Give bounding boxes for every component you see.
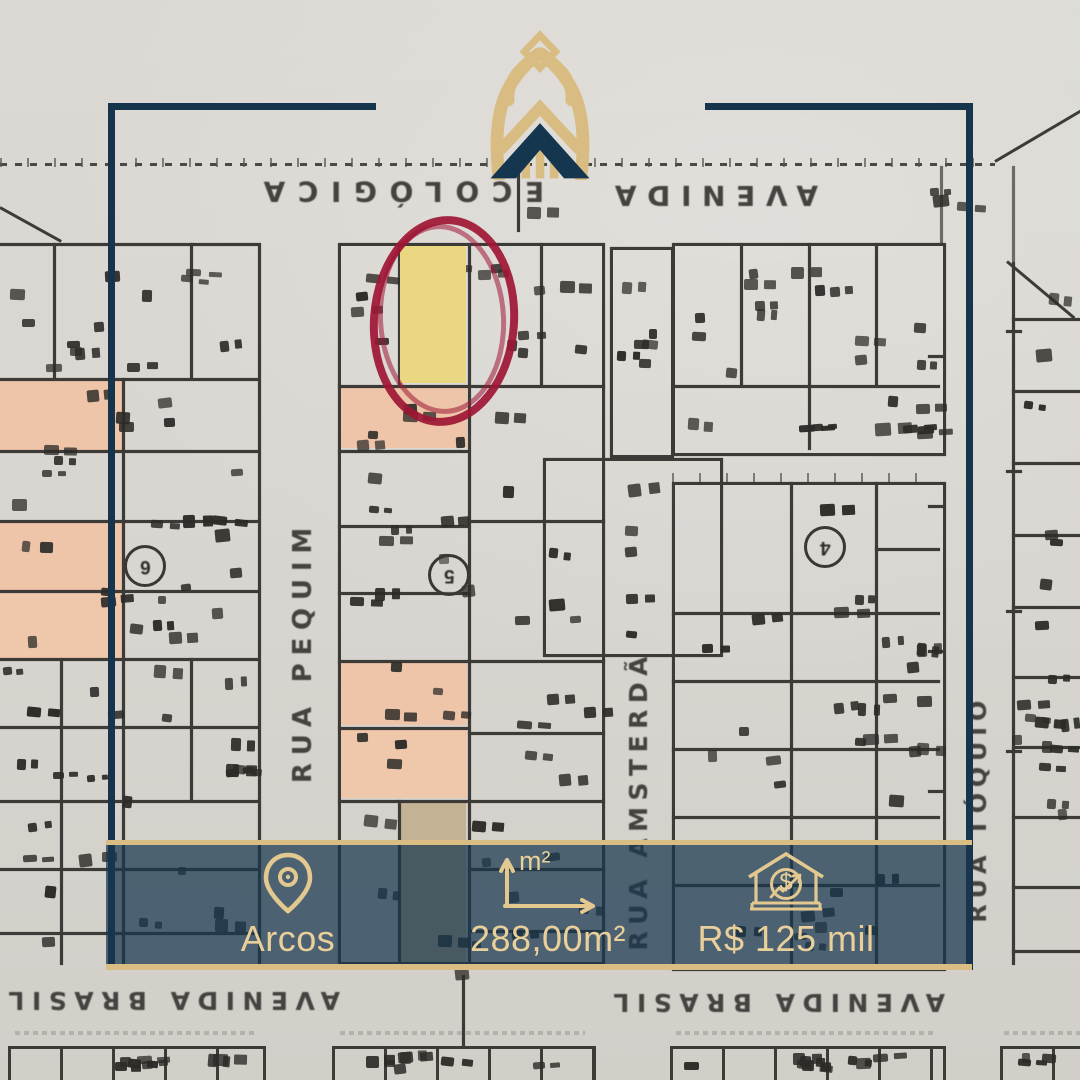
map-line bbox=[672, 816, 940, 819]
lot-number-smudge bbox=[625, 594, 638, 605]
lot-number-smudge bbox=[854, 738, 866, 746]
lot-number-smudge bbox=[46, 364, 62, 373]
map-line bbox=[875, 243, 878, 385]
decorative bbox=[505, 900, 593, 912]
lot-number-smudge bbox=[94, 322, 105, 333]
frame-top-left-segment bbox=[108, 103, 376, 110]
lot-number-smudge bbox=[791, 267, 805, 279]
lot-number-smudge bbox=[907, 662, 920, 674]
lot-number-smudge bbox=[1024, 400, 1034, 409]
lot-number-smudge bbox=[857, 703, 866, 716]
lot-number-smudge bbox=[231, 469, 243, 477]
map-line bbox=[672, 473, 940, 482]
lot-number-smudge bbox=[570, 615, 581, 623]
lot-number-smudge bbox=[142, 1061, 153, 1070]
lot-number-smudge bbox=[44, 445, 59, 455]
lot-number-smudge bbox=[918, 425, 934, 434]
lot-number-smudge bbox=[1050, 539, 1063, 547]
decorative bbox=[509, 59, 535, 100]
map-line bbox=[928, 505, 944, 508]
lot-number-smudge bbox=[130, 623, 144, 634]
lot-number-smudge bbox=[363, 814, 378, 828]
lot-number-smudge bbox=[575, 344, 588, 354]
lot-number-smudge bbox=[883, 694, 897, 704]
lot-number-smudge bbox=[226, 769, 238, 778]
lot-number-smudge bbox=[212, 515, 228, 526]
price-item: $ R$ 125 mil bbox=[666, 845, 906, 964]
decorative: 5 bbox=[444, 564, 455, 586]
lot-number-smudge bbox=[503, 486, 514, 498]
map-line bbox=[190, 243, 193, 378]
map-line bbox=[1012, 262, 1015, 965]
lot-number-smudge bbox=[22, 318, 35, 327]
lot-number-smudge bbox=[2, 667, 12, 675]
lot-number-smudge bbox=[28, 823, 38, 833]
lot-number-smudge bbox=[834, 702, 845, 714]
lot-number-smudge bbox=[932, 195, 949, 209]
decorative bbox=[262, 852, 314, 914]
lot-number-smudge bbox=[90, 687, 100, 697]
faint-smudge-line bbox=[340, 1031, 585, 1035]
lot-number-smudge bbox=[873, 1054, 888, 1063]
decorative bbox=[455, 28, 625, 180]
lot-number-smudge bbox=[162, 713, 172, 722]
map-line bbox=[0, 243, 258, 246]
lot-number-smudge bbox=[158, 397, 173, 408]
location-pin-icon bbox=[262, 850, 314, 914]
lot-number-smudge bbox=[168, 632, 182, 645]
lot-number-smudge bbox=[54, 456, 63, 465]
lot-number-smudge bbox=[916, 360, 925, 370]
lot-number-smudge bbox=[751, 613, 765, 625]
area-value: 288,00m² bbox=[470, 918, 626, 960]
map-line bbox=[672, 612, 940, 615]
street-label-rua-pequim: RUA PEQUIM bbox=[288, 520, 318, 783]
lot-number-smudge bbox=[1039, 579, 1052, 592]
lot-number-smudge bbox=[87, 774, 96, 782]
lot-number-smudge bbox=[127, 363, 140, 372]
map-line bbox=[1012, 166, 1015, 262]
lot-number-smudge bbox=[549, 548, 559, 558]
lot-number-smudge bbox=[119, 422, 134, 432]
lot-number-smudge bbox=[152, 619, 162, 630]
lot-number-smudge bbox=[527, 207, 541, 219]
lot-number-smudge bbox=[78, 853, 93, 867]
lot-number-smudge bbox=[1022, 1053, 1031, 1063]
map-line bbox=[928, 355, 944, 358]
lot-number-smudge bbox=[472, 820, 487, 833]
faint-smudge-line bbox=[676, 1031, 934, 1035]
map-line bbox=[1012, 816, 1080, 819]
lot-number-smudge bbox=[351, 307, 364, 317]
block-number-marker: 4 bbox=[804, 526, 846, 568]
lot-number-smudge bbox=[369, 506, 379, 514]
map-line bbox=[338, 800, 605, 803]
lot-number-smudge bbox=[384, 1060, 395, 1067]
street-label-avenida-brasil-left: AVENIDA BRASIL bbox=[20, 986, 340, 1015]
block-number-marker: 5 bbox=[428, 554, 470, 596]
decorative bbox=[750, 903, 822, 909]
decorative: 6 bbox=[140, 555, 151, 577]
lot-number-smudge bbox=[357, 439, 370, 451]
lot-number-smudge bbox=[219, 341, 229, 353]
lot-number-smudge bbox=[547, 693, 559, 705]
lot-number-smudge bbox=[433, 687, 444, 695]
lot-number-smudge bbox=[914, 323, 926, 333]
lot-number-smudge bbox=[123, 796, 133, 809]
decorative bbox=[501, 860, 513, 906]
map-line bbox=[1012, 950, 1080, 953]
info-banner: Arcos m² 288,00m² $ bbox=[106, 840, 972, 970]
lot-number-smudge bbox=[518, 348, 528, 359]
map-line bbox=[1012, 606, 1080, 609]
lot-number-smudge bbox=[1039, 763, 1051, 772]
salmon-lot bbox=[0, 523, 122, 590]
lot-number-smudge bbox=[1042, 1054, 1057, 1064]
lot-number-smudge bbox=[350, 597, 364, 607]
lot-number-smudge bbox=[739, 727, 749, 737]
map-line bbox=[928, 790, 944, 793]
lot-number-smudge bbox=[533, 1061, 546, 1069]
map-line bbox=[0, 726, 258, 729]
lot-number-smudge bbox=[1034, 716, 1048, 728]
decorative bbox=[286, 874, 290, 878]
map-line bbox=[0, 658, 258, 661]
lot-number-smudge bbox=[695, 313, 705, 323]
lot-number-smudge bbox=[617, 351, 626, 361]
lot-number-smudge bbox=[584, 707, 596, 719]
lot-number-smudge bbox=[494, 412, 509, 425]
map-line bbox=[1012, 676, 1080, 679]
lot-number-smudge bbox=[357, 733, 368, 742]
map-line bbox=[1012, 318, 1080, 321]
lot-number-smudge bbox=[916, 696, 931, 707]
lot-number-smudge bbox=[1049, 293, 1060, 306]
map-line bbox=[672, 680, 940, 683]
lot-number-smudge bbox=[625, 526, 638, 537]
lot-number-smudge bbox=[708, 750, 718, 762]
lot-number-smudge bbox=[225, 677, 234, 690]
lot-number-smudge bbox=[215, 528, 231, 542]
lot-number-smudge bbox=[12, 499, 27, 511]
map-line bbox=[875, 548, 940, 551]
map-line bbox=[1012, 886, 1080, 889]
dollar-glyph: $ bbox=[779, 869, 792, 897]
lot-number-smudge bbox=[391, 525, 399, 535]
lot-outline bbox=[1000, 1046, 1080, 1080]
lot-number-smudge bbox=[649, 329, 657, 339]
lot-number-smudge bbox=[368, 473, 383, 486]
map-line bbox=[0, 378, 258, 381]
lot-number-smudge bbox=[1035, 349, 1052, 363]
house-dollar-icon: $ bbox=[743, 850, 829, 914]
map-line bbox=[540, 243, 543, 385]
lot-number-smudge bbox=[386, 759, 402, 770]
lot-number-smudge bbox=[10, 289, 25, 301]
lot-number-smudge bbox=[875, 422, 892, 436]
decorative: 4 bbox=[820, 536, 831, 558]
lot-number-smudge bbox=[744, 279, 758, 291]
lot-number-smudge bbox=[41, 470, 51, 477]
location-label: Arcos bbox=[241, 918, 336, 960]
lot-number-smudge bbox=[830, 287, 840, 297]
street-label-avenida: AVENIDA bbox=[648, 179, 818, 212]
lot-number-smudge bbox=[158, 596, 166, 604]
map-line bbox=[338, 660, 605, 663]
area-arrows-icon: m² bbox=[493, 850, 603, 914]
lot-number-smudge bbox=[181, 274, 193, 282]
lot-number-smudge bbox=[639, 358, 652, 367]
faint-smudge-line bbox=[1004, 1031, 1080, 1035]
lot-number-smudge bbox=[27, 636, 37, 649]
lot-number-smudge bbox=[375, 588, 385, 601]
lot-number-smudge bbox=[518, 331, 530, 341]
area-item: m² 288,00m² bbox=[428, 845, 668, 964]
lot-number-smudge bbox=[793, 1053, 805, 1065]
lot-number-smudge bbox=[86, 390, 99, 403]
map-line bbox=[808, 243, 811, 450]
map-line bbox=[0, 206, 62, 243]
lot-number-smudge bbox=[394, 740, 406, 750]
lot-number-smudge bbox=[17, 759, 26, 770]
lot-number-smudge bbox=[621, 282, 631, 295]
lot-number-smudge bbox=[517, 720, 533, 729]
map-line bbox=[53, 243, 56, 378]
lot-number-smudge bbox=[882, 637, 891, 649]
lot-number-smudge bbox=[625, 630, 636, 638]
map-line bbox=[994, 107, 1080, 162]
lot-number-smudge bbox=[128, 1059, 142, 1069]
lot-number-smudge bbox=[21, 541, 30, 553]
lot-number-smudge bbox=[26, 707, 41, 718]
lot-number-smudge bbox=[726, 367, 738, 378]
lot-number-smudge bbox=[385, 709, 400, 721]
lot-number-smudge bbox=[211, 608, 222, 620]
lot-number-smudge bbox=[916, 404, 930, 414]
lot-number-smudge bbox=[559, 773, 572, 786]
lot-number-smudge bbox=[151, 519, 164, 528]
listing-graphic: ECOLÓGICA AVENIDA RUA PEQUIM RUA AMSTERD… bbox=[0, 0, 1080, 1080]
price-value: R$ 125 mil bbox=[697, 918, 874, 960]
map-line bbox=[190, 658, 193, 800]
lot-number-smudge bbox=[549, 598, 565, 611]
lot-number-smudge bbox=[164, 418, 175, 427]
lot-number-smudge bbox=[70, 347, 82, 356]
lot-number-smudge bbox=[400, 1052, 411, 1064]
lot-number-smudge bbox=[1048, 675, 1057, 684]
map-line bbox=[1012, 390, 1080, 393]
lot-number-smudge bbox=[1061, 719, 1070, 732]
lot-number-smudge bbox=[368, 431, 379, 439]
lot-number-smudge bbox=[855, 336, 869, 346]
salmon-lot bbox=[0, 381, 122, 450]
crown-monogram-logo bbox=[455, 28, 625, 180]
lot-number-smudge bbox=[41, 937, 55, 947]
lot-number-smudge bbox=[1016, 700, 1031, 711]
lot-number-smudge bbox=[1035, 621, 1049, 631]
frame-top-right-segment bbox=[705, 103, 973, 110]
lot-number-smudge bbox=[798, 425, 814, 433]
lot-number-smudge bbox=[441, 515, 455, 527]
lot-number-smudge bbox=[624, 546, 637, 557]
map-line bbox=[338, 727, 468, 730]
lot-number-smudge bbox=[889, 794, 904, 807]
lot-number-smudge bbox=[115, 1062, 127, 1071]
lot-number-smudge bbox=[1012, 735, 1022, 745]
lot-number-smudge bbox=[1058, 808, 1068, 820]
lot-number-smudge bbox=[534, 286, 546, 296]
lot-number-smudge bbox=[23, 854, 37, 862]
lot-number-smudge bbox=[456, 437, 466, 448]
lot-number-smudge bbox=[213, 1053, 228, 1066]
lot-number-smudge bbox=[229, 568, 242, 579]
lot-number-smudge bbox=[888, 395, 898, 407]
lot-number-smudge bbox=[688, 418, 700, 430]
street-label-avenida-brasil-right: AVENIDA BRASIL bbox=[655, 988, 945, 1017]
location-item: Arcos bbox=[168, 845, 408, 964]
lot-number-smudge bbox=[641, 339, 658, 349]
map-line bbox=[60, 658, 63, 965]
map-line bbox=[1006, 260, 1075, 319]
area-icon-unit-label: m² bbox=[519, 846, 550, 877]
map-line bbox=[740, 243, 743, 385]
map-line bbox=[0, 450, 258, 453]
lot-number-smudge bbox=[1047, 799, 1056, 810]
lot-number-smudge bbox=[154, 665, 167, 678]
faint-smudge-line bbox=[15, 1031, 255, 1035]
lot-number-smudge bbox=[855, 595, 864, 606]
lot-number-smudge bbox=[525, 751, 538, 761]
lot-number-smudge bbox=[443, 710, 455, 720]
lot-number-smudge bbox=[393, 1063, 406, 1074]
lot-number-smudge bbox=[815, 284, 826, 296]
lot-number-smudge bbox=[1050, 744, 1064, 753]
map-line bbox=[1012, 462, 1080, 465]
lot-number-smudge bbox=[366, 1056, 379, 1068]
lot-number-smudge bbox=[834, 606, 849, 617]
decorative bbox=[546, 59, 572, 100]
lot-number-smudge bbox=[182, 515, 194, 528]
lot-number-smudge bbox=[856, 1058, 871, 1070]
lot-number-smudge bbox=[231, 738, 241, 751]
lot-number-smudge bbox=[379, 536, 394, 546]
lot-number-smudge bbox=[515, 616, 530, 626]
lot-number-smudge bbox=[855, 355, 868, 366]
lot-number-smudge bbox=[44, 885, 56, 898]
block-number-marker: 6 bbox=[124, 545, 166, 587]
lot-number-smudge bbox=[692, 332, 707, 342]
map-line bbox=[468, 732, 605, 735]
map-line bbox=[0, 590, 258, 593]
map-line bbox=[462, 975, 465, 1046]
lot-number-smudge bbox=[390, 662, 402, 672]
map-line bbox=[672, 385, 940, 388]
lot-number-smudge bbox=[627, 484, 642, 498]
lot-number-smudge bbox=[1044, 529, 1058, 540]
lot-number-smudge bbox=[819, 504, 835, 516]
lot-number-smudge bbox=[40, 542, 53, 553]
lot-number-smudge bbox=[917, 742, 930, 755]
lot-number-smudge bbox=[684, 1062, 699, 1070]
lot-number-smudge bbox=[702, 644, 713, 653]
lot-number-smudge bbox=[1024, 714, 1036, 723]
lot-number-smudge bbox=[755, 301, 765, 312]
lot-number-smudge bbox=[142, 290, 153, 302]
lot-number-smudge bbox=[53, 772, 64, 779]
map-line bbox=[928, 650, 944, 653]
lot-number-smudge bbox=[559, 281, 575, 293]
